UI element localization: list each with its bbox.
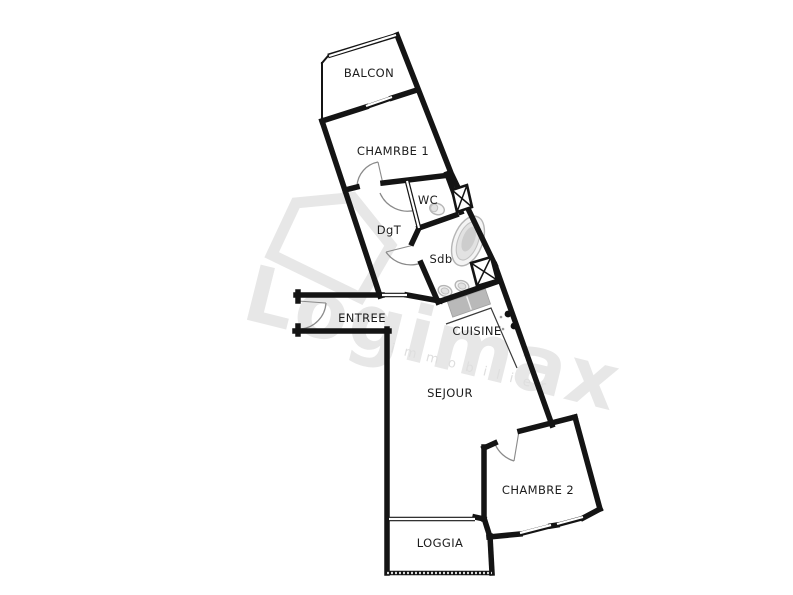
room-label-chambre1: CHAMRBE 1	[357, 144, 429, 158]
wall-chambre2-bottom-a	[489, 534, 520, 537]
floorplan-page: Logimax immobilier	[0, 0, 793, 595]
room-label-balcon: BALCON	[344, 66, 394, 80]
shaft-x-icon	[471, 257, 497, 286]
wall-balcon-chambre1-a	[322, 107, 366, 121]
wall-balcon-chambre1-b	[392, 90, 417, 98]
balcony-notch	[322, 56, 328, 63]
room-label-loggia: LOGGIA	[417, 536, 464, 550]
room-label-chambre2: CHAMBRE 2	[502, 483, 574, 497]
wall-chambre2-bottom-b	[551, 525, 557, 526]
floorplan-svg: Logimax immobilier	[0, 0, 793, 595]
wall-wc-bottom	[419, 215, 456, 228]
room-label-sejour: SEJOUR	[427, 386, 473, 400]
wall-sdb-left-top	[412, 228, 419, 243]
room-label-entree: ENTREE	[338, 311, 386, 325]
door-leaf-chambre2	[514, 431, 519, 461]
door-arc-chambre2	[495, 444, 514, 461]
room-label-wc: WC	[418, 193, 438, 207]
wall-chambre1-bottom-b	[383, 175, 450, 183]
wall-chambre2-right	[575, 417, 600, 509]
door-arc-chambre1	[357, 162, 378, 186]
room-label-sdb: Sdb	[429, 252, 452, 266]
wall-chambre2-bottom-c	[583, 509, 600, 518]
wall-chambre1-bottom-a	[345, 187, 357, 190]
room-label-cuisine: CUISINE	[452, 324, 501, 338]
wall-sejour-window-stub	[475, 517, 484, 519]
watermark-brand: Logimax	[235, 249, 629, 429]
wall-loggia-right	[490, 536, 492, 573]
room-label-dgt: DgT	[377, 223, 402, 237]
shaft-x-icon	[452, 185, 472, 212]
